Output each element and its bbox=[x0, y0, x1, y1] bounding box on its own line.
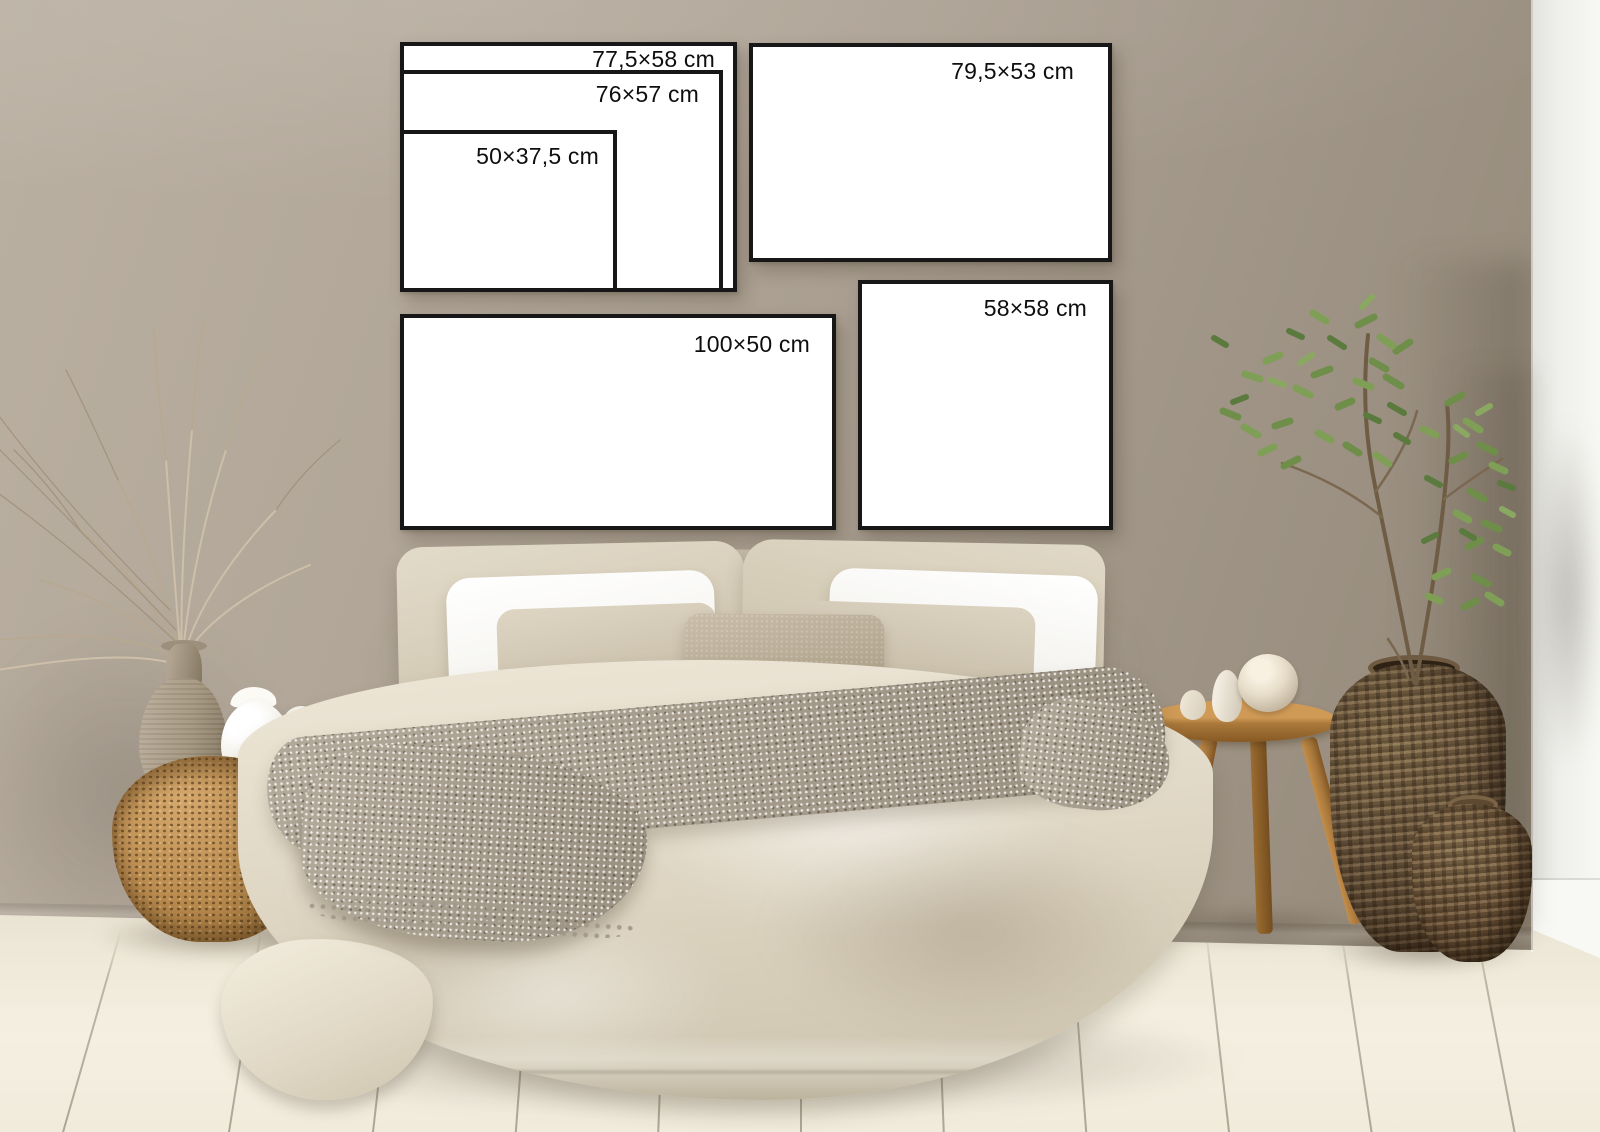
size-frame-58x58: 58×58 cm bbox=[858, 280, 1113, 530]
bedroom-mockup-scene: 77,5×58 cm 76×57 cm 50×37,5 cm 79,5×53 c… bbox=[0, 0, 1600, 1132]
frame-size-label: 58×58 cm bbox=[984, 295, 1087, 322]
size-frame-50x37-5: 50×37,5 cm bbox=[400, 130, 617, 292]
green-branch-plant bbox=[1140, 285, 1540, 705]
duvet-fold-shadow bbox=[765, 827, 1175, 1038]
frame-size-label: 77,5×58 cm bbox=[592, 46, 715, 73]
frame-size-label: 100×50 cm bbox=[694, 331, 810, 358]
size-frame-100x50: 100×50 cm bbox=[400, 314, 836, 530]
small-wicker-vase bbox=[1412, 804, 1532, 962]
floor-plank-seam bbox=[1205, 930, 1231, 1132]
dried-branches bbox=[0, 310, 360, 680]
size-frame-79-5x53: 79,5×53 cm bbox=[749, 43, 1112, 262]
frame-size-label: 79,5×53 cm bbox=[951, 58, 1074, 85]
frame-size-label: 76×57 cm bbox=[596, 81, 699, 108]
frame-size-label: 50×37,5 cm bbox=[476, 143, 599, 170]
floor-plank-seam bbox=[62, 930, 122, 1132]
column-plant-shadow bbox=[1535, 420, 1600, 770]
